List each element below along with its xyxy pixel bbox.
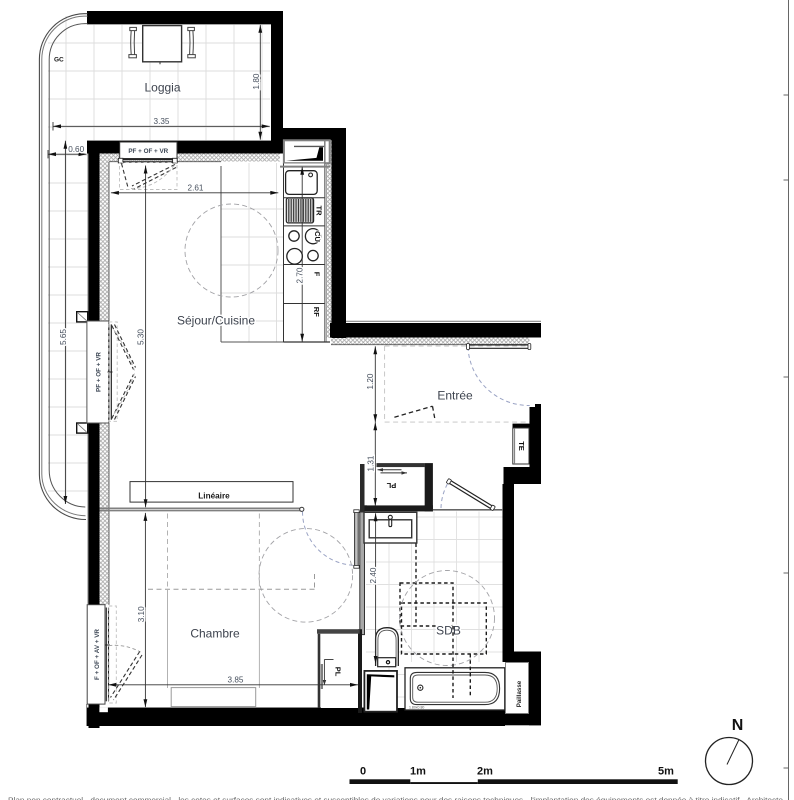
svg-text:TE: TE [517,441,526,451]
svg-text:5m: 5m [658,766,674,778]
svg-text:Loggia: Loggia [144,81,180,95]
svg-text:GC: GC [54,57,64,64]
svg-text:PL: PL [386,481,396,490]
svg-text:PF + OF + VR: PF + OF + VR [128,148,168,155]
svg-text:3.35: 3.35 [154,117,170,126]
svg-text:5.30: 5.30 [137,329,146,345]
svg-text:RF: RF [312,307,321,317]
svg-text:0.60: 0.60 [68,145,84,154]
svg-text:TR: TR [314,206,323,217]
svg-text:1.31: 1.31 [367,455,376,471]
svg-text:0: 0 [360,766,366,778]
svg-text:2.40: 2.40 [369,567,378,583]
svg-text:Chambre: Chambre [190,626,240,640]
svg-text:N: N [732,717,744,734]
svg-text:2.70: 2.70 [296,267,305,283]
svg-text:3.10: 3.10 [137,606,146,622]
svg-text:Séjour/Cuisine: Séjour/Cuisine [177,314,255,328]
svg-text:Entrée: Entrée [437,389,473,403]
svg-text:PL: PL [334,667,343,677]
svg-text:SDB: SDB [436,624,461,638]
svg-text:F: F [313,272,322,277]
svg-text:PF + OF + VR: PF + OF + VR [96,352,103,392]
svg-text:3.85: 3.85 [228,676,244,685]
svg-text:1.80x0.80: 1.80x0.80 [409,706,424,710]
svg-text:1.80: 1.80 [252,73,261,89]
svg-text:Linéaire: Linéaire [198,491,230,500]
svg-text:Paillasse: Paillasse [516,680,523,707]
svg-text:CU: CU [313,231,322,242]
svg-text:1.20: 1.20 [366,373,375,389]
svg-text:1m: 1m [410,766,426,778]
svg-text:F + OF + AV + VR: F + OF + AV + VR [94,629,101,680]
svg-text:2.61: 2.61 [188,183,204,192]
svg-text:5.65: 5.65 [59,329,68,345]
svg-text:2m: 2m [477,766,493,778]
